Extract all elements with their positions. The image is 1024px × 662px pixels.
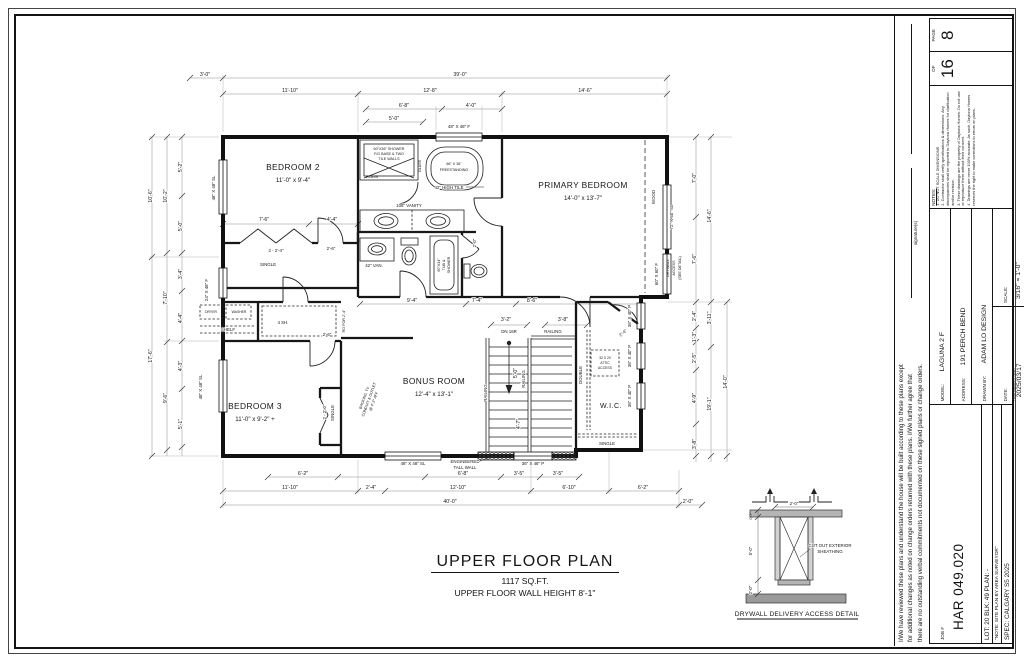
detail-dim: 2'-0" [748,585,753,594]
dim: 6'-8" [458,471,468,477]
dim: 6'-10" [562,485,575,491]
lot-line: LOT: 20 BLK: 49 PLAN: - [981,405,992,643]
of-label: OF [931,52,936,84]
dim: 17'-6" [148,349,154,362]
dim: 4'-4" [178,313,184,323]
staircase [486,336,576,452]
model-value: LAGUNA 2 F [939,332,946,371]
window-label-laundry: 24" X 48" F [204,279,209,301]
detail-dim: 2'-0" [790,501,799,506]
note-item: 4. Drawings are never 100% accurate. As … [967,88,977,206]
detail-dim: 5'-0" [748,546,753,555]
dim: 2'-5" [692,353,698,363]
page-label: PAGE [931,19,936,51]
dim: 7'-6" [259,217,269,223]
window-label-wic-p: 36" X 40" P [627,345,632,367]
dim: 11'-10" [282,485,298,491]
title-block-main: JOB # HAR 049.020 LOT: 20 BLK: 49 PLAN: … [929,18,1013,644]
tub-label: 66" X 36" [446,162,462,166]
room-size-bedroom3: 11'-0" x 9'-2" + [235,416,275,423]
drywall-detail: 2'-0" 0'-7" 5'-0" 2'-0" CUT OUT EXTERIOR… [735,488,860,619]
dim: 3'-8" [692,439,698,449]
note-item: 2. Contractor shall verify specification… [941,88,956,206]
dim: 9'-4" [407,298,417,304]
dim: 7'-0" [692,173,698,183]
dim: 5'-0" [178,221,184,231]
job-label: JOB # [940,627,945,640]
dim: 4'-7" [516,419,522,429]
dim: 3'-5" [553,471,563,477]
dim: 39'-0" [453,72,466,78]
dim: 6'-8" [399,103,409,109]
dim: 5'-0" [389,116,399,122]
room-size-bonus: 12'-4" x 13'-1" [415,391,453,398]
dim: 6'-2" [638,485,648,491]
bed2-door-dim: 2'-6" [327,246,336,251]
tile-note: 42" HIGH TILE [434,185,463,190]
drawn-by-label: DRAWN BY: [982,376,987,402]
scale-label: SCALE: [1003,287,1008,303]
dim: 4'-0" [466,103,476,109]
vanity-42-label: 42" VAN. [365,263,383,268]
room-label-primary: PRIMARY BEDROOM [538,180,627,190]
window-label-stair: 36" X 48" P [522,461,544,466]
detail-dim: 0'-7" [749,512,753,520]
detail-title: DRYWALL DELIVERY ACCESS DETAIL [735,611,860,618]
dim: 3'-0" [200,72,210,78]
drywall-access-note: ACCESS [672,260,676,276]
attic-access-label: ACCESS [598,366,613,370]
plan-area: 1117 SQ.FT. [375,576,675,586]
dim: 40'-0" [443,499,456,505]
single-rod-label: SINGLE [599,441,615,446]
dim: 4'-3" [178,361,184,371]
four-shelves-label: 4 SH. [278,320,289,325]
dim: 12'-10" [450,485,466,491]
water-closet-toilet [464,264,487,278]
plan-title-group: UPPER FLOOR PLAN 1117 SQ.FT. UPPER FLOOR… [375,553,675,598]
railing-label: RAILING [483,384,488,402]
room-label-wic: W.I.C. [600,403,622,410]
vanity-108-label: 108" VANITY [396,203,422,208]
dim: 3'-2" [501,317,511,323]
closet2-single-label: SINGLE [260,262,276,267]
page-total: 16 [938,52,958,84]
dim: 5'-1" [178,419,184,429]
plan-title: UPPER FLOOR PLAN [431,553,620,573]
spec-line: SPEC: CALGARY S5 2025 [1001,405,1012,643]
note-item: 3. These drawings are the property of Da… [957,88,967,206]
disclaimer-text: I/We have reviewed these plans and under… [895,312,925,646]
dim: 2'-4" [366,485,376,491]
ro-note: RO FOR 2'-4" [342,309,346,332]
washer-label: WASHER [232,310,247,314]
dim: 12'-8" [423,88,436,94]
double-rod-label: DOUBLE [578,366,583,384]
date-value: 2025/03/17 [1016,310,1023,397]
window-label-bonus: 48" X 48" SL [401,461,426,466]
room-label-bonus: BONUS ROOM [403,376,465,386]
address-label: ADDRESS: [961,378,966,402]
drawn-by-value: ADAM LO DESIGN [981,305,988,364]
room-label-bedroom3: BEDROOM 3 [228,401,282,411]
shower-label: 60"X36" SHOWER [374,147,405,151]
dim: 7'-6" [692,254,698,264]
window-label-primary-f: 60" X 60" F [654,263,659,285]
dim: 6'-2" [298,471,308,477]
dim: 14'-0" [723,375,729,388]
wc-door-dim: 2'-0" [472,238,477,247]
svg-text:SHOWER: SHOWER [447,256,451,273]
model-section: MODEL: LAGUNA 2 F ADDRESS: 191 PERCH BEN… [930,208,1012,405]
attic-access-label: ATTIC [600,361,610,365]
scale-value: 3/16" = 1'-0" [1015,212,1022,299]
railing-label: RAILING [544,329,562,334]
closet3-single-label: SINGLE [330,405,335,421]
site-plan-note: "NOTE: SITE PLAN BY AREA SURVEYOR" [992,405,1001,643]
drywall-access-note: DRYWALL [666,259,670,277]
engineered-wall-note: TALL WALL [453,465,477,470]
svg-text:TUB &: TUB & [442,259,446,270]
job-number: HAR 049.020 [951,408,966,630]
notes-section: NOTES: 1. DO NOT SCALE DIMENSIONS 2. Con… [930,85,1012,208]
dim: 2'-4" [692,311,698,321]
window-label-wic-p: 36" X 40" P [627,305,632,327]
shelf-label: SHELF [221,327,235,332]
dryer-label: DRYER [205,310,217,314]
room-size-primary: 14'-0" x 13'-7" [564,195,602,202]
wic-door-dim: 2'-4" [618,328,628,338]
title-block: I/We have reviewed these plans and under… [894,16,1013,646]
ensuite-vanity [360,210,464,232]
address-value: 191 PERCH BEND [960,308,967,366]
dim: 10'-6" [148,189,154,202]
signature-label: signature(s) [913,168,918,298]
dim: 3'-5" [514,471,524,477]
window-label-bed3: 48" X 48" SL [198,374,203,399]
signature-field[interactable]: signature(s) [903,168,918,298]
dim: 14'-6" [578,88,591,94]
dim: 4'-9" [692,393,698,403]
dim: 14'-6" [707,209,713,222]
dim: 11'-10" [282,88,298,94]
dim: 7'-4" [472,298,482,304]
dim: 19'-1" [707,397,713,410]
shower-label: F/G BASE & TWO [374,152,404,156]
signature-field[interactable] [903,24,918,154]
dim: 3'-8" [558,317,568,323]
engineered-wall-note: ENGINEERED [450,459,479,464]
job-section: JOB # HAR 049.020 LOT: 20 BLK: 49 PLAN: … [930,404,1012,643]
dim: 9'-6" [163,393,169,403]
page-section: OF 16 PAGE 8 [930,19,1012,85]
wood-label: WOOD [651,190,656,204]
closet2-doors-label: 2 - 2'-4" [268,248,284,253]
stair-dn-label: DN 16R [501,329,517,334]
attic-access-label: 32 X 20 [599,356,611,360]
glass-label: GLASS [418,159,422,172]
tub-label: FREESTANDING [440,168,469,172]
shower-label: TILE WALLS [378,157,400,161]
date-label: DATE: [1003,388,1008,401]
detail-note: SHEATHING [817,549,843,554]
drywall-access-note: (SEE DETAIL) [678,256,682,280]
svg-text:60"X34": 60"X34" [437,258,441,272]
dim: 3'-11" [707,311,713,324]
drawing-sheet: BEDROOM 2 11'-0" x 9'-4" PRIMARY BEDROOM… [0,0,1024,662]
tub-shower-label: 60"X34" TUB & SHOWER [437,256,451,273]
backing-tv-note: BACKING, TV CONDUIT & OUTLET @ 4'-2" AFF [356,380,382,419]
dim: 3'-4" [178,269,184,279]
window-label-wic-p: 36" X 40" P [627,385,632,407]
window-label-primary-sl: 72" X 60" SL [669,204,674,229]
model-label: MODEL: [940,384,945,402]
dim: 10'-2" [163,189,169,202]
dim: 1'-3" [692,332,698,342]
page-number: 8 [938,19,958,51]
dim: 4'-4" [327,217,337,223]
railing-label: RAILING [521,370,526,388]
title-block-disclaimer-row: I/We have reviewed these plans and under… [895,16,928,646]
room-size-bedroom2: 11'-0" x 9'-4" [276,177,310,184]
hall-door-dim: 2'-6" [323,332,332,337]
dim: 8'-6" [527,298,537,304]
dim: 5'-2" [178,162,184,172]
glass-label: GLASS [366,175,379,179]
room-label-bedroom2: BEDROOM 2 [266,162,320,172]
closet3-doors-label: 2 - 2'-0" [322,404,327,420]
plan-wall-height: UPPER FLOOR WALL HEIGHT 8'-1" [375,588,675,598]
dim: 2'-0" [683,499,693,505]
dim: 7'-10" [163,291,169,304]
window-label-bed2: 48" X 48" SL [211,175,216,200]
dim: 5'-0" [513,368,519,378]
detail-note: CUT OUT EXTERIOR [808,543,851,548]
window-label-top: 48" X 48" F [448,124,470,129]
